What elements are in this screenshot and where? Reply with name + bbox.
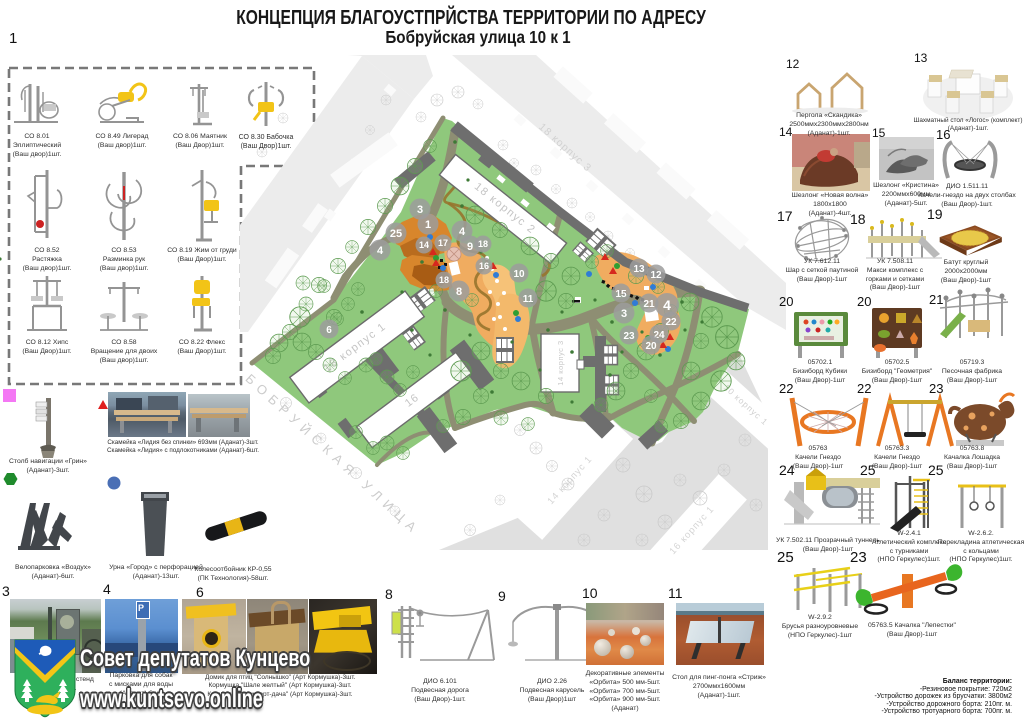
svg-text:3: 3 (621, 308, 627, 320)
svg-text:10: 10 (513, 269, 525, 280)
svg-text:3: 3 (417, 204, 423, 216)
svg-text:12: 12 (650, 270, 662, 281)
svg-text:14: 14 (419, 240, 429, 250)
svg-text:21: 21 (643, 299, 655, 310)
svg-text:18: 18 (439, 275, 449, 285)
svg-text:23: 23 (623, 331, 635, 342)
svg-text:1: 1 (425, 219, 431, 231)
svg-text:11: 11 (523, 294, 534, 305)
svg-text:16: 16 (479, 261, 489, 271)
svg-text:14 корпус 3: 14 корпус 3 (556, 340, 565, 385)
svg-text:18: 18 (478, 239, 488, 249)
svg-text:17: 17 (438, 238, 448, 248)
svg-text:15: 15 (615, 289, 627, 300)
svg-text:25: 25 (390, 228, 402, 240)
svg-text:4: 4 (459, 226, 466, 238)
svg-text:20: 20 (645, 341, 657, 352)
svg-text:8: 8 (456, 286, 462, 298)
svg-text:13: 13 (633, 264, 645, 275)
svg-text:22: 22 (665, 317, 677, 328)
svg-text:4: 4 (663, 297, 671, 313)
svg-text:9: 9 (467, 241, 473, 253)
svg-text:4: 4 (377, 245, 384, 257)
